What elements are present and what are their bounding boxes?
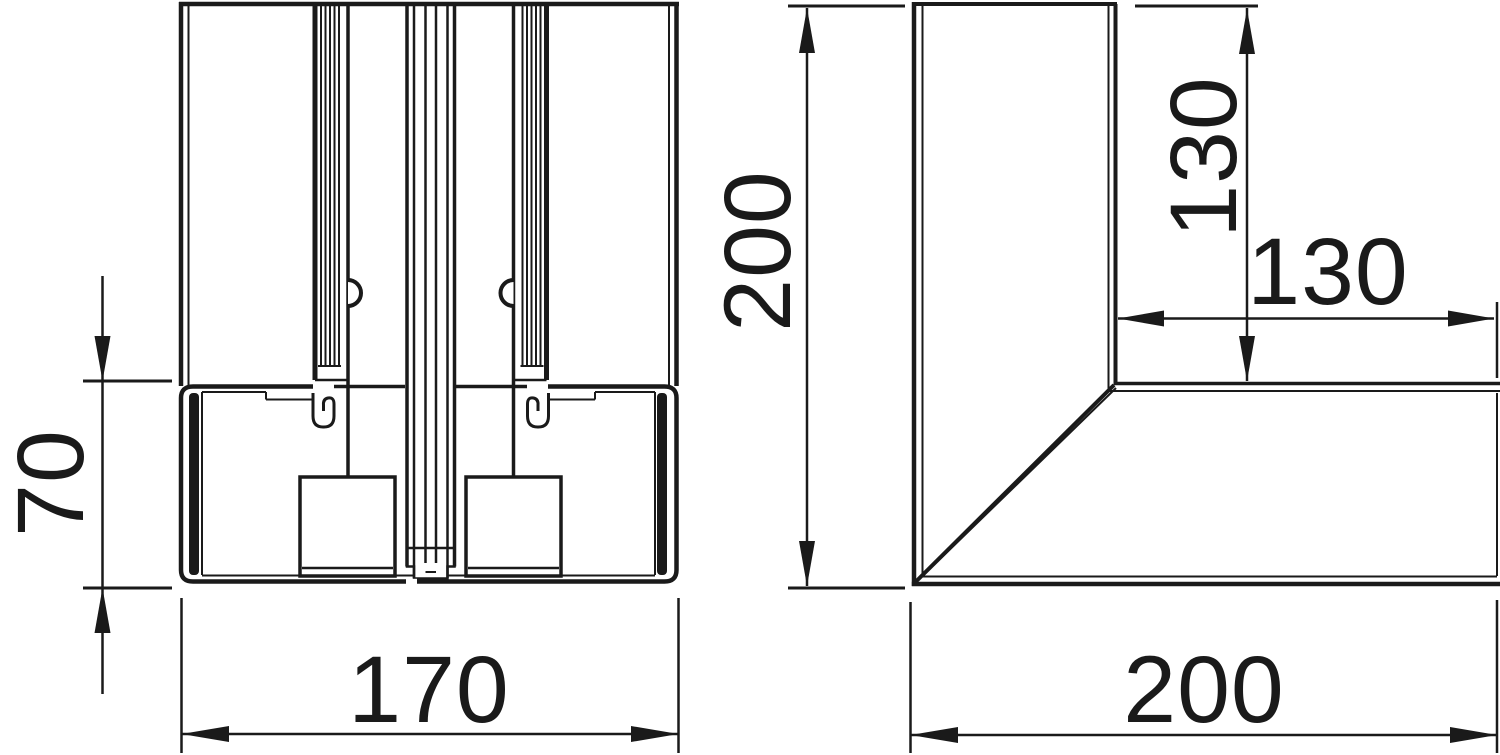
dimension-leg-vertical: 130 — [1135, 6, 1258, 381]
dimension-base-width: 170 — [182, 598, 679, 753]
hanger-left — [313, 4, 361, 478]
drawing-svg: 70 170 200 130 — [0, 0, 1500, 755]
gasket-bar-left — [189, 393, 199, 575]
hook-left — [313, 393, 334, 427]
section-view — [179, 2, 679, 586]
dimension-base-height: 70 — [0, 276, 172, 694]
technical-drawing-canvas: 70 170 200 130 — [0, 0, 1500, 755]
divider-web — [407, 4, 455, 578]
dim-label-130-horizontal: 130 — [1247, 219, 1409, 325]
junction-box-right — [466, 477, 561, 576]
dim-label-200-right: 200 — [1123, 637, 1285, 743]
dim-label-130-vertical: 130 — [1151, 76, 1257, 238]
dimensions: 70 170 200 130 — [0, 6, 1497, 753]
latch-knob-left — [348, 280, 361, 306]
latch-knob-right — [501, 280, 514, 306]
miter-joint-line — [916, 385, 1115, 582]
dimension-overall-height: 200 — [705, 6, 905, 588]
upper-duct — [179, 2, 679, 386]
gasket-bar-right — [657, 393, 667, 575]
dim-label-200-left: 200 — [705, 170, 811, 332]
hook-right — [528, 393, 549, 427]
dimension-corner-width: 200 — [911, 600, 1498, 753]
dim-label-70: 70 — [0, 429, 104, 537]
base-bottom-gap — [406, 579, 417, 586]
junction-box-left — [300, 477, 395, 576]
dimension-leg-horizontal: 130 — [1118, 219, 1497, 378]
hanger-right — [501, 4, 549, 478]
dim-label-170: 170 — [348, 637, 510, 743]
